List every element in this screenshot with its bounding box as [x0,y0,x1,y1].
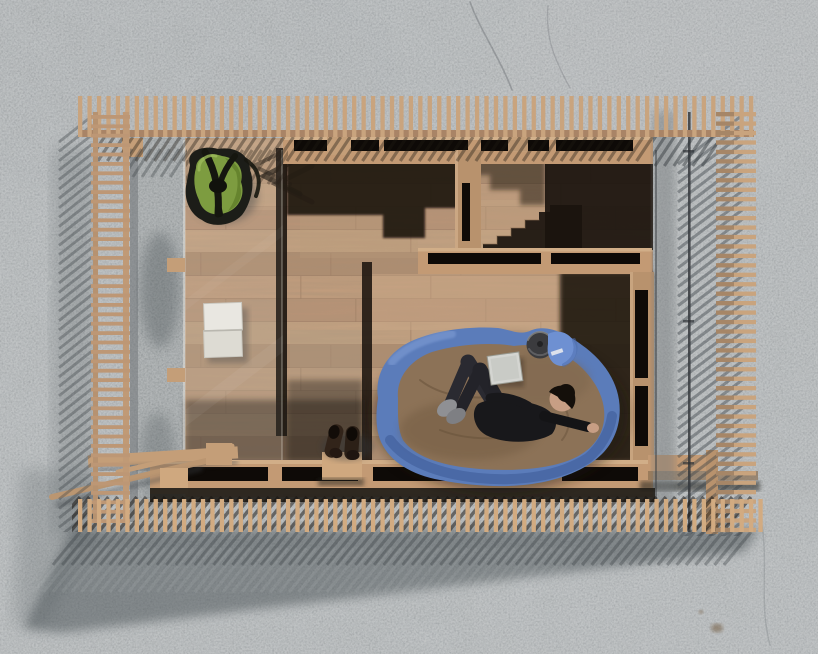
fence-slats-bottom-slat [295,499,299,532]
fence-slats-bottom-slat [201,499,205,532]
fence-slats-bottom-slat [191,499,195,532]
pergola-slats-top-slat [560,96,564,137]
ladder-rungs-slat [91,435,130,439]
pergola-slats-top-slat [541,96,545,137]
pergola-slats-top-slat [390,96,394,137]
clerestory-band-mid-hl [418,248,652,252]
backpack-knot [209,179,227,193]
fence-slats-right-shade-slat [716,112,734,116]
pergola-slats-top-slat [163,96,167,137]
ground-stain-small [698,610,703,614]
fence-slats-bottom-slat [730,499,734,532]
fence-slats-bottom-slat [210,499,214,532]
pebble-5 [424,640,427,643]
fence-slats-right-shade-slat [716,301,734,305]
fence-slats-right-shade-slat [716,490,734,494]
fence-slats-bottom-slat [702,499,706,532]
ladder-rungs-slat [91,143,130,147]
ladder-rungs-slat [91,350,130,354]
pergola-slats-top-slat [267,96,271,137]
ladder-rungs-slat [91,406,130,410]
beanie-button [537,341,543,347]
pergola-slats-top-slat [371,96,375,137]
pergola-slats-top-slat [456,96,460,137]
fence-slats-right-shade-slat [716,178,734,182]
pergola-slats-top-slat [513,96,517,137]
sleeping-wall-right-hl [630,272,633,462]
fence-slats-bottom-slat [598,499,602,532]
fence-slats-bottom-slat [343,499,347,532]
ladder-rungs-slat [91,218,130,222]
pergola-slats-top-slat [702,96,706,137]
pergola-slats-top-slat [295,96,299,137]
fence-slats-right-shade-slat [716,273,734,277]
fence-slats-bottom-slat [135,499,139,532]
fence-slats-right-shade-slat [716,254,734,258]
fence-slats-bottom-slat [494,499,498,532]
fence-slats-bottom-slat [248,499,252,532]
ladder-rungs-slat [91,124,130,128]
clerestory-mid-slot-1 [428,253,541,264]
clerestory-mid-slot-2 [551,253,640,264]
fence-slats-right-shade-slat [716,235,734,239]
fence-slats-bottom-slat [399,499,403,532]
pergola-slats-top-slat [740,96,744,137]
ladder-rungs-slat [91,171,130,175]
fence-slats-bottom-slat [352,499,356,532]
ladder-rungs-slat [91,322,130,326]
fence-slats-right-shade-slat [716,150,734,154]
fence-slats-bottom-slat [673,499,677,532]
ladder-rungs-slat [91,453,130,457]
ladder-rungs-slat [91,190,130,194]
fence-slats-bottom-slat [220,499,224,532]
pergola-slats-top-slat [465,96,469,137]
ladder-rungs-slat [91,256,130,260]
pergola-slats-top-slat [276,96,280,137]
fence-slats-bottom-slat [617,499,621,532]
pebble-3 [703,53,707,57]
pergola-slats-top-slat [551,96,555,137]
fence-slats-bottom-slat [267,499,271,532]
fence-slats-right-shade-slat [716,225,734,229]
fence-slats-bottom-slat [154,499,158,532]
fence-slats-right-shade-slat [716,282,734,286]
pergola-slats-top-slat [447,96,451,137]
fence-slats-bottom-slat [475,499,479,532]
fence-slats-right-shade-slat [716,358,734,362]
pergola-slats-top-slat [617,96,621,137]
fence-slats-bottom-slat [276,499,280,532]
ladder-rungs-slat [91,115,130,119]
fence-slats-bottom-slat [314,499,318,532]
pergola-slats-top-slat [607,96,611,137]
corner-block-3 [206,443,232,465]
fence-slats-bottom-slat [465,499,469,532]
pergola-slats-top-slat [730,96,734,137]
pergola-slats-top-slat [362,96,366,137]
pergola-slats-top-slat [314,96,318,137]
fence-slats-bottom-slat [409,499,413,532]
pergola-slats-top-slat [579,96,583,137]
pergola-slats-top-slat [333,96,337,137]
fence-slats-bottom-slat [116,499,120,532]
fence-slats-bottom-slat [607,499,611,532]
fence-slats-bottom-slat [229,499,233,532]
ladder-rungs-slat [91,237,130,241]
ladder-rungs-slat [91,388,130,392]
person-hair-top [557,384,575,402]
fence-slats-right-shade-slat [716,452,734,456]
pergola-rail-top [78,130,754,137]
fence-slats-bottom-slat [522,499,526,532]
fence-slats-bottom-slat [645,499,649,532]
fence-slats-bottom-slat [106,499,110,532]
ladder-rungs-slat [91,228,130,232]
pergola-slats-top-slat [305,96,309,137]
fence-slats-bottom-slat [683,499,687,532]
fence-slats-bottom-slat [654,499,658,532]
pergola-slats-top-slat [352,96,356,137]
fence-slats-bottom-slat [428,499,432,532]
fence-slats-bottom-slat [664,499,668,532]
pergola-slats-top-slat [645,96,649,137]
sleeping-wall-slot-1 [635,290,648,378]
fence-slats-right-shade-slat [716,207,734,211]
fence-slats-right-shade-slat [716,188,734,192]
fence-slats-bottom-slat [560,499,564,532]
fence-slats-bottom-slat [87,499,91,532]
ladder-rungs-slat [91,303,130,307]
fence-slats-right-shade-slat [716,396,734,400]
ladder-rungs-slat [91,284,130,288]
tablet-screen [491,355,520,381]
ladder-rungs-slat [91,491,130,495]
pergola-slats-top-slat [173,96,177,137]
pergola-slats-top-slat [711,96,715,137]
fence-slats-right-shade-slat [716,320,734,324]
fence-slats-right-shade-slat [716,310,734,314]
fence-slats-bottom-slat [333,499,337,532]
fence-slats-bottom-slat [579,499,583,532]
fence-slats-bottom-slat [418,499,422,532]
fence-slats-bottom-slat [749,499,753,532]
pergola-slats-top-slat [409,96,413,137]
book-crease [204,330,242,331]
fence-slats-bottom-slat [692,499,696,532]
fence-slats-right-shade-slat [716,405,734,409]
fence-slats-right-shade-slat [716,367,734,371]
fence-slats-bottom-slat [371,499,375,532]
pergola-slats-top-slat [475,96,479,137]
ladder-rungs-slat [91,162,130,166]
gravel-shadow-blob-1 [140,232,180,348]
pergola-slats-top-slat [135,96,139,137]
fence-slats-right-shade-slat [716,121,734,125]
book-page-bottom [204,329,243,357]
fence-slats-right-shade-slat [716,414,734,418]
pergola-slats-top-slat [220,96,224,137]
fence-slats-bottom-slat [758,499,762,532]
fence-slats-bottom-slat [588,499,592,532]
fence-slats-right-shade-slat [716,216,734,220]
pebble-6 [770,298,773,301]
pergola-slats-top-slat [229,96,233,137]
ladder-rungs-slat [91,397,130,401]
fence-slats-right-shade-slat [716,244,734,248]
fence-slats-bottom-slat [456,499,460,532]
ladder-rungs-slat [91,378,130,382]
ladder-rungs-slat [91,341,130,345]
pergola-slats-top-slat [418,96,422,137]
pergola-slats-top-slat [569,96,573,137]
pergola-slats-top-slat [201,96,205,137]
pergola-slats-top-slat [428,96,432,137]
pebble-7 [29,451,32,454]
fence-slats-right-shade-slat [716,348,734,352]
fence-slats-bottom-slat [258,499,262,532]
aerial-pavilion-svg [0,0,818,654]
ground-stain [711,624,723,633]
fence-slats-bottom-slat [324,499,328,532]
fence-slats-right-shade-slat [716,481,734,485]
pergola-slats-top-slat [654,96,658,137]
book-page-top [204,302,243,330]
pergola-slats-top-slat [636,96,640,137]
fence-slats-bottom-slat [125,499,129,532]
pebble-1 [48,281,52,285]
pergola-slats-top-slat [522,96,526,137]
steel-rail-2 [655,150,657,522]
ladder-rungs-slat [91,331,130,335]
fence-slats-bottom-slat [626,499,630,532]
corner-block-shadow [318,478,364,486]
pergola-slats-top-slat [239,96,243,137]
pergola-slats-top-slat [286,96,290,137]
fence-slats-bottom-slat [569,499,573,532]
fence-slats-right-shade-slat [716,377,734,381]
pergola-slats-top-slat [588,96,592,137]
fence-slats-bottom-slat [305,499,309,532]
glass-edge-right [281,150,283,480]
fence-slats-right-shade-slat [716,462,734,466]
fence-slats-right-shade-slat [716,197,734,201]
pergola-slats-top-slat [380,96,384,137]
pergola-slats-top-slat [598,96,602,137]
fence-slats-bottom-slat [97,499,101,532]
fence-slats-right-shade-slat [716,169,734,173]
fence-slats-bottom-slat [711,499,715,532]
pergola-slats-top-slat [258,96,262,137]
fence-slats-bottom-slat [532,499,536,532]
ladder-rungs-slat [91,153,130,157]
floor-lit-sleeparea [372,274,562,330]
pergola-slats-top-slat [626,96,630,137]
ladder-rungs-slat [91,181,130,185]
fence-slats-right-shade-slat [716,329,734,333]
scene-layers [0,0,818,654]
pergola-slats-top-slat [343,96,347,137]
fence-slats-right-shade-slat [716,424,734,428]
pergola-slats-top-slat [683,96,687,137]
ladder-rungs-slat [91,275,130,279]
fence-slats-right-shade-slat [716,292,734,296]
pergola-slats-top-slat [399,96,403,137]
fence-slats-right-shade-slat [716,433,734,437]
ladder-rungs-slat [91,209,130,213]
pergola-slats-top-slat [210,96,214,137]
ladder-rungs-slat [91,444,130,448]
glass-post-1 [167,258,185,272]
fence-slats-bottom-slat [740,499,744,532]
pergola-slats-top-slat [503,96,507,137]
fence-slats-bottom-slat [380,499,384,532]
pergola-slats-top-slat [494,96,498,137]
ladder-rungs-slat [91,472,130,476]
ladder-rungs-slat [91,247,130,251]
pergola-slats-top-slat [78,96,82,137]
fence-slats-bottom-slat [362,499,366,532]
pebble-2 [145,88,148,91]
pergola-slats-top-slat [248,96,252,137]
fence-slats-right-shade-slat [716,443,734,447]
fence-slats-bottom-slat [503,499,507,532]
pergola-slats-top-slat [191,96,195,137]
fence-slats-right-shade-slat [716,140,734,144]
fence-slats-bottom-slat [163,499,167,532]
ladder-rungs-slat [91,425,130,429]
ladder-rungs-slat [91,312,130,316]
pergola-slats-top-slat [664,96,668,137]
fence-slats-bottom-slat [239,499,243,532]
pergola-slats-top-slat [673,96,677,137]
wall-shadow-strip-mid [362,262,372,462]
fence-slats-bottom-slat [182,499,186,532]
window-post-hl [455,150,458,250]
ladder-rungs-slat [91,265,130,269]
ladder-rungs-slat [91,416,130,420]
pergola-slats-top-slat [749,96,753,137]
fence-slats-right-shade-slat [716,339,734,343]
fence-slats-bottom-slat [636,499,640,532]
pergola-slats-top-slat [324,96,328,137]
pergola-slats-top-slat [721,96,725,137]
ladder-rungs-slat [91,294,130,298]
fence-slats-bottom-slat [484,499,488,532]
ladder-rungs-slat [91,482,130,486]
fence-slats-bottom-slat [437,499,441,532]
fence-slats-bottom-slat [173,499,177,532]
fence-slats-bottom-slat [513,499,517,532]
aerial-pavilion-photo [0,0,818,654]
pergola-slats-top-slat [182,96,186,137]
glass-post-2 [167,368,185,382]
fence-slats-bottom-slat [390,499,394,532]
pergola-slats-top-slat [154,96,158,137]
sleeping-wall-slot-2 [635,386,648,446]
ladder-rungs-slat [91,463,130,467]
fence-slats-bottom-slat [78,499,82,532]
pergola-slats-top-slat [532,96,536,137]
fence-slats-right-shade-slat [716,131,734,135]
fence-slats-right-shade-slat [716,471,734,475]
fence-slats-bottom-slat [447,499,451,532]
ladder-rungs-slat [91,369,130,373]
ladder-rungs-slat [91,134,130,138]
pergola-slats-top-slat [484,96,488,137]
person-hand [587,423,599,433]
fence-slats-right-shade-slat [716,159,734,163]
fence-slats-bottom-slat [541,499,545,532]
fence-slats-bottom-slat [144,499,148,532]
ladder-rungs-slat [91,200,130,204]
ladder-rungs-slat [91,359,130,363]
fence-slats-bottom-slat [721,499,725,532]
fence-slats-bottom-slat [286,499,290,532]
fence-slats-bottom-slat [551,499,555,532]
window-post-slot [462,183,470,241]
fence-slats-right-shade-slat [716,263,734,267]
pergola-slats-top-slat [437,96,441,137]
pergola-slats-top-slat [692,96,696,137]
pergola-slats-top-slat [144,96,148,137]
fence-slats-right-shade-slat [716,386,734,390]
